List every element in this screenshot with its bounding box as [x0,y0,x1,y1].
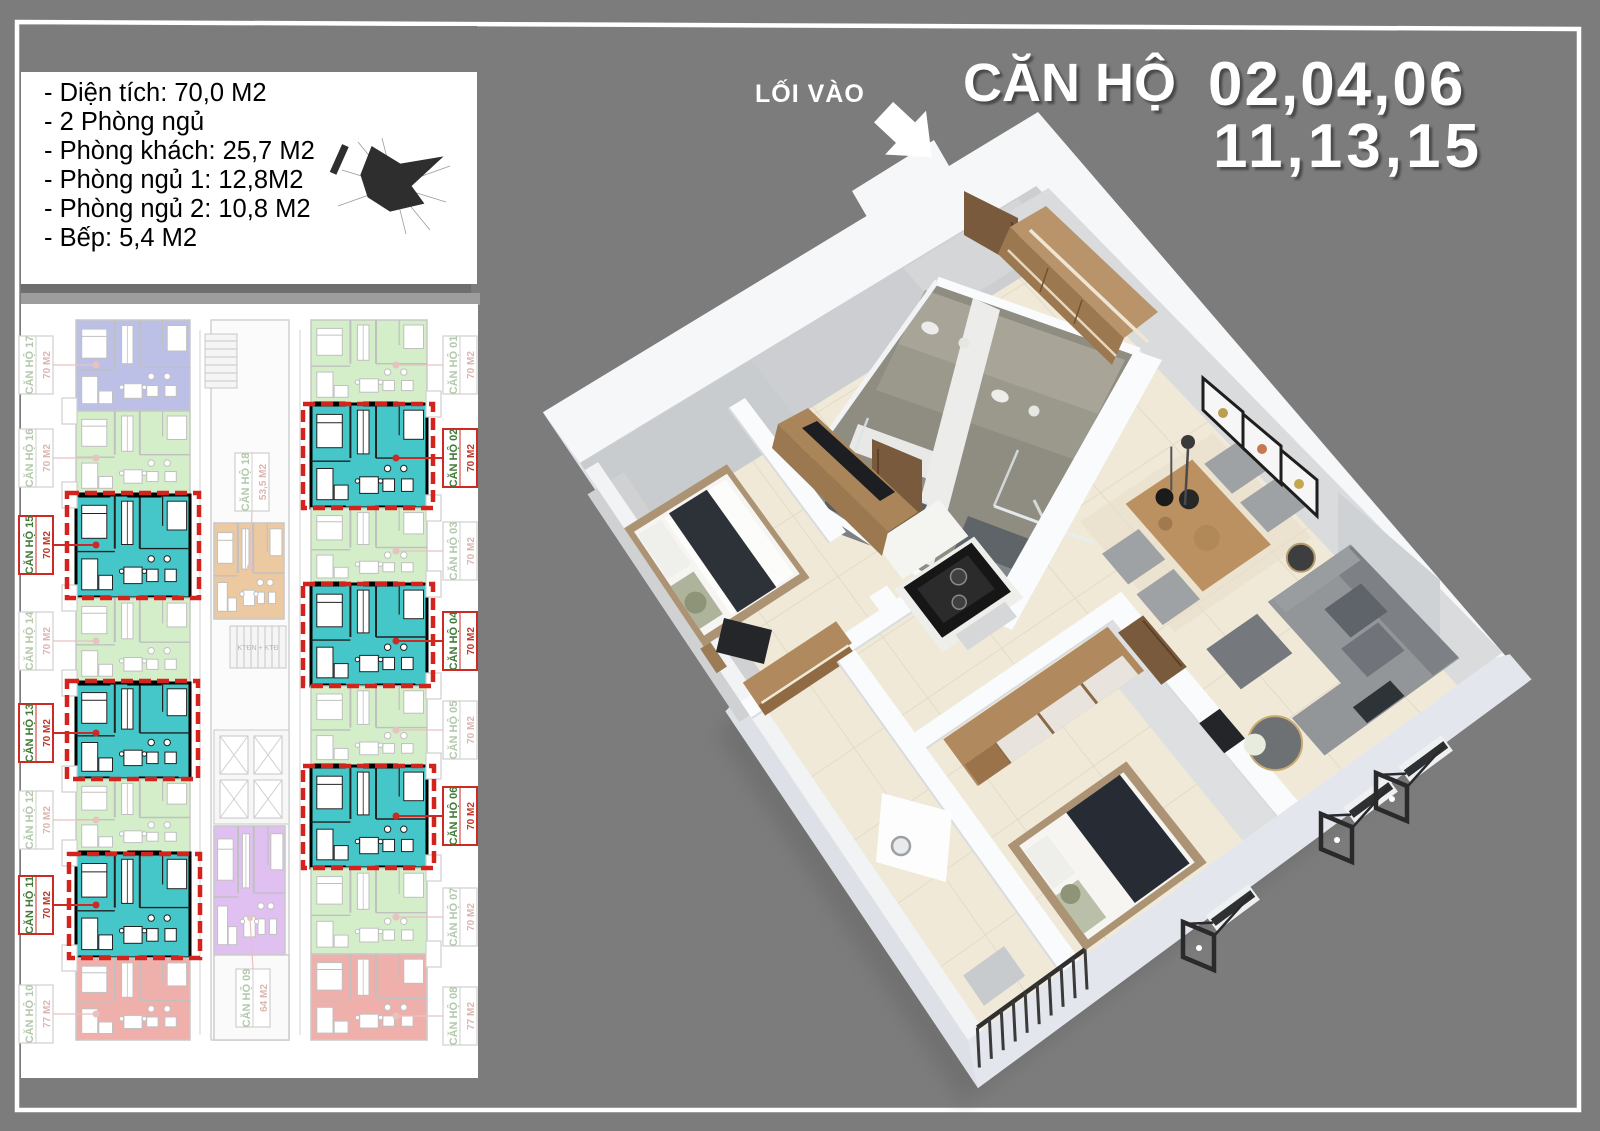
svg-text:- Phòng ngủ 1: 12,8M2: - Phòng ngủ 1: 12,8M2 [44,166,303,194]
svg-text:70 M2: 70 M2 [42,891,53,919]
svg-text:CĂN HỘ 13: CĂN HỘ 13 [23,704,36,763]
svg-text:CĂN HỘ 12: CĂN HỘ 12 [23,791,36,850]
svg-text:CĂN HỘ 09: CĂN HỘ 09 [240,969,253,1028]
svg-text:70 M2: 70 M2 [466,351,477,379]
svg-text:77 M2: 77 M2 [42,1000,53,1028]
svg-text:CĂN HỘ 05: CĂN HỘ 05 [447,701,460,760]
svg-text:70 M2: 70 M2 [42,627,53,655]
svg-text:CĂN HỘ 10: CĂN HỘ 10 [23,985,36,1044]
svg-text:70 M2: 70 M2 [42,444,53,472]
svg-text:CĂN HỘ 16: CĂN HỘ 16 [23,429,36,488]
svg-text:70 M2: 70 M2 [42,531,53,559]
svg-text:70 M2: 70 M2 [466,537,477,565]
svg-text:70 M2: 70 M2 [466,903,477,931]
svg-text:CĂN HỘ 03: CĂN HỘ 03 [447,522,460,581]
svg-text:LỐI VÀO: LỐI VÀO [755,78,865,108]
svg-text:- Bếp: 5,4 M2: - Bếp: 5,4 M2 [44,224,197,252]
svg-text:CĂN HỘ 02: CĂN HỘ 02 [447,429,460,488]
svg-text:11,13,15: 11,13,15 [1213,112,1483,181]
svg-text:CĂN HỘ 15: CĂN HỘ 15 [23,516,36,575]
svg-text:CĂN HỘ 08: CĂN HỘ 08 [447,987,460,1046]
svg-text:CĂN HỘ 01: CĂN HỘ 01 [447,336,460,395]
svg-text:70 M2: 70 M2 [466,627,477,655]
svg-text:- 2 Phòng ngủ: - 2 Phòng ngủ [44,108,204,136]
svg-text:53,5 M2: 53,5 M2 [258,463,269,500]
svg-text:CĂN HỘ 11: CĂN HỘ 11 [23,876,36,934]
svg-text:70 M2: 70 M2 [466,444,477,472]
svg-text:70 M2: 70 M2 [42,351,53,379]
svg-text:64 M2: 64 M2 [259,984,270,1012]
svg-text:70 M2: 70 M2 [42,719,53,747]
svg-text:CĂN HỘ 18: CĂN HỘ 18 [239,453,252,512]
svg-text:CĂN HỘ 14: CĂN HỘ 14 [23,611,36,671]
svg-text:77 M2: 77 M2 [466,1002,477,1030]
svg-text:70 M2: 70 M2 [466,716,477,744]
svg-text:CĂN HỘ 17: CĂN HỘ 17 [23,336,36,395]
svg-text:CĂN HỘ 06: CĂN HỘ 06 [447,787,460,846]
svg-text:CĂN HỘ: CĂN HỘ [963,52,1176,113]
svg-text:- Phòng khách: 25,7 M2: - Phòng khách: 25,7 M2 [44,137,315,165]
svg-text:- Phòng ngủ 2: 10,8 M2: - Phòng ngủ 2: 10,8 M2 [44,195,311,223]
svg-text:CĂN HỘ 04: CĂN HỘ 04 [447,611,460,671]
svg-text:CĂN HỘ 07: CĂN HỘ 07 [447,888,460,947]
svg-text:70 M2: 70 M2 [42,806,53,834]
svg-text:70 M2: 70 M2 [466,802,477,830]
svg-text:02,04,06: 02,04,06 [1208,50,1465,119]
svg-text:KTĐN + KTĐ: KTĐN + KTĐ [237,645,278,652]
svg-text:- Diện tích: 70,0 M2: - Diện tích: 70,0 M2 [44,79,267,107]
